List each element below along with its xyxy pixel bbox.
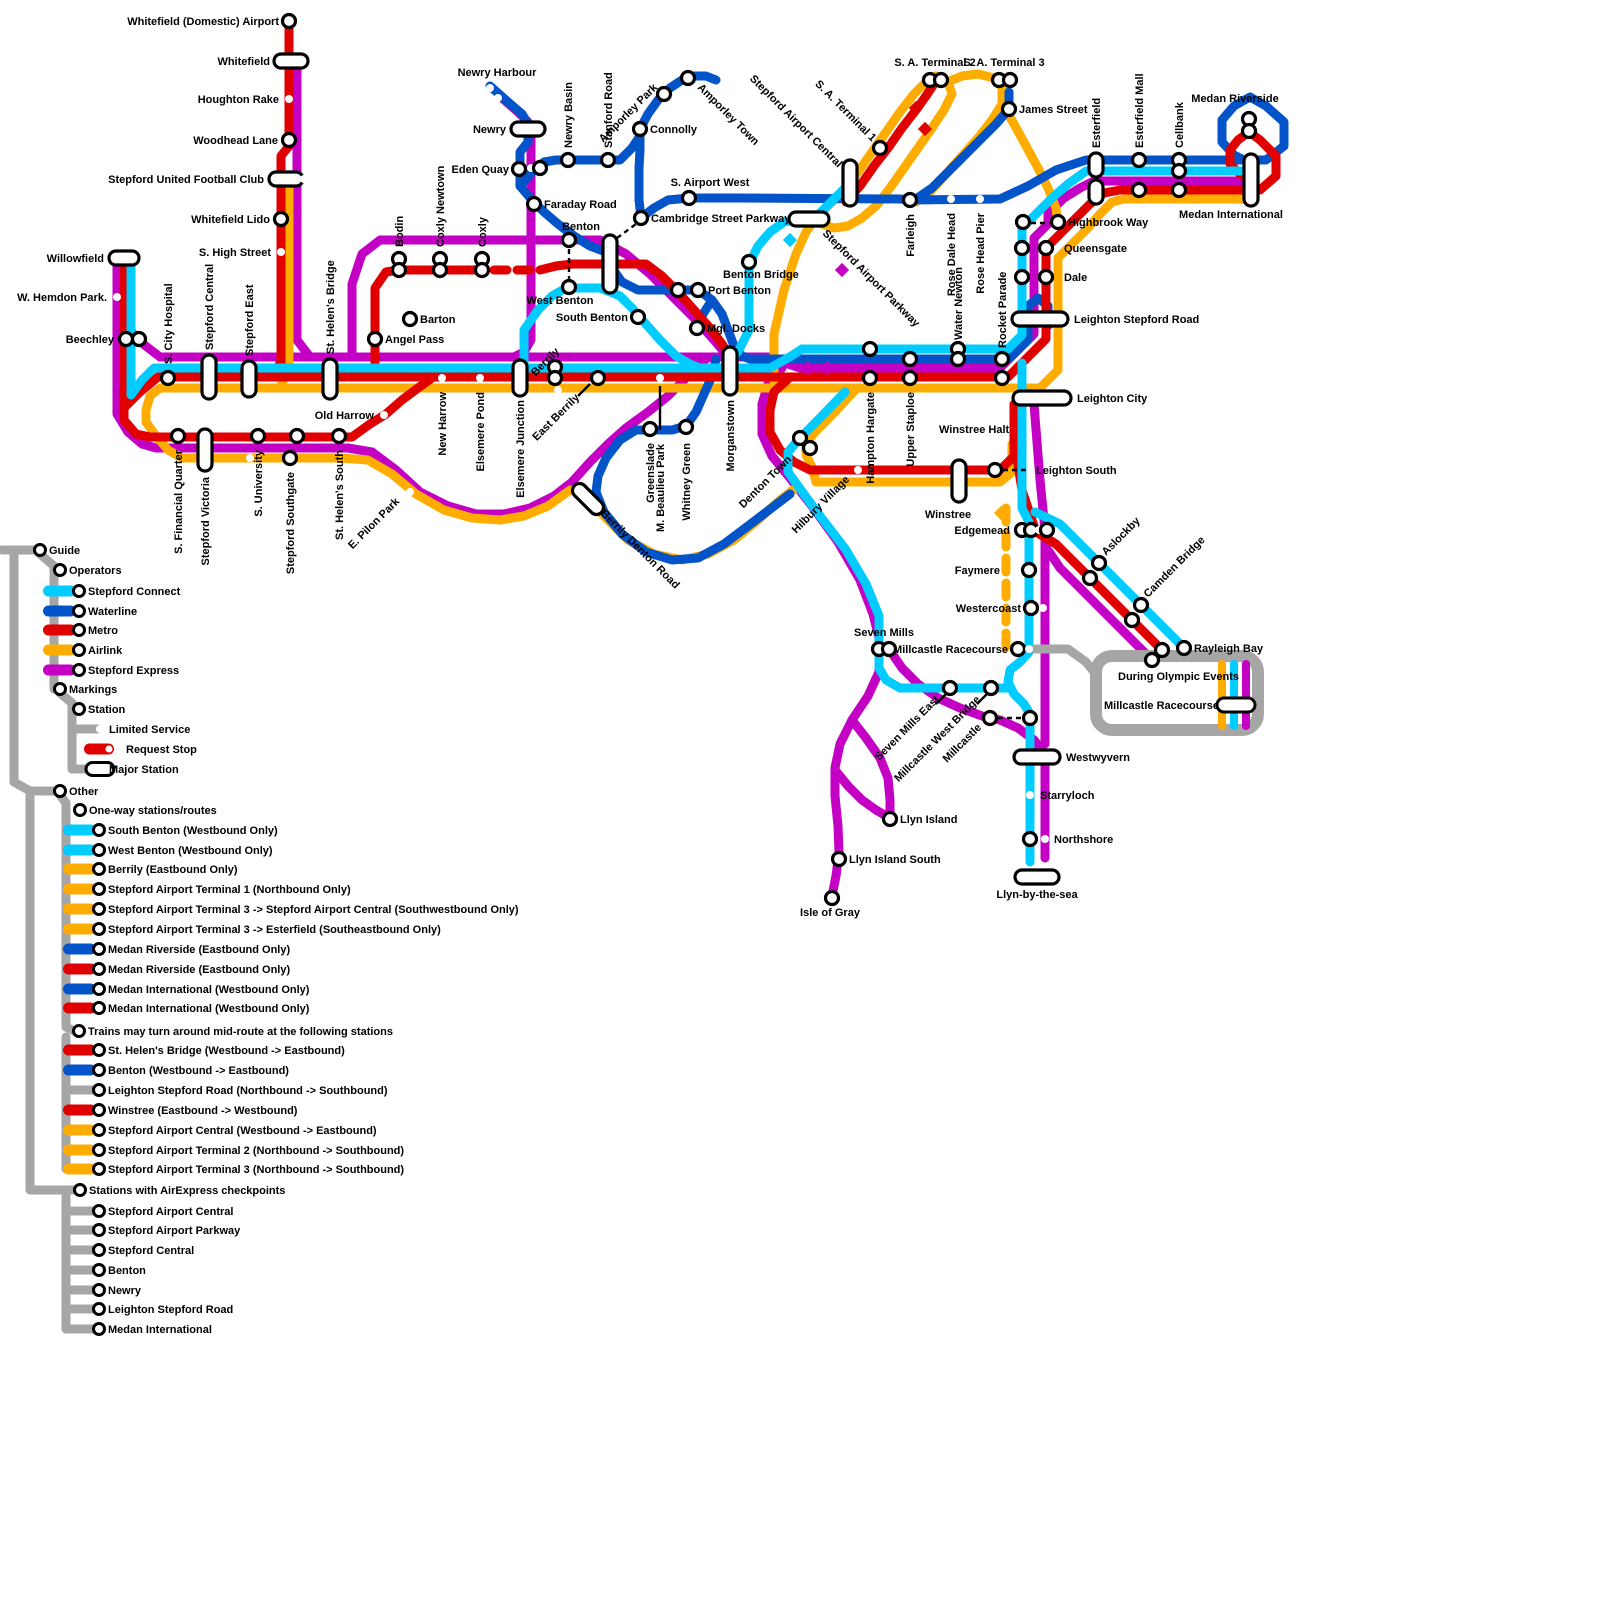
- station-marker: [935, 74, 948, 87]
- station-marker: [1052, 216, 1065, 229]
- legend-label: Stepford Connect: [88, 586, 181, 598]
- legend-node: [94, 1304, 105, 1315]
- legend-node: [55, 786, 66, 797]
- station-label: Houghton Rake: [198, 94, 279, 106]
- station-label: Elsemere Junction: [515, 400, 527, 498]
- limited-service-dot: [486, 84, 494, 92]
- legend-node: [94, 924, 105, 935]
- station-label: M. Beaulieu Park: [655, 443, 667, 532]
- legend-node: [94, 1206, 105, 1217]
- station-label: Farleigh: [905, 214, 917, 257]
- station-label: Whitney Green: [681, 443, 693, 521]
- inset-olympic-label: During Olympic Events: [1118, 671, 1239, 683]
- station-label: Northshore: [1054, 834, 1113, 846]
- station-label: Stepford United Football Club: [108, 174, 264, 186]
- inset-major-station-marker: [1217, 698, 1255, 712]
- limited-service-dot: [1041, 835, 1049, 843]
- station-marker: [644, 423, 657, 436]
- major-station-marker: [202, 355, 216, 399]
- station-marker: [602, 154, 615, 167]
- major-station-marker: [952, 460, 966, 502]
- limited-service-dot: [113, 293, 121, 301]
- legend-label: Station: [88, 704, 126, 716]
- station-marker: [1243, 125, 1256, 138]
- station-label: Queensgate: [1064, 243, 1127, 255]
- station-marker: [434, 264, 447, 277]
- major-station-marker: [603, 235, 617, 293]
- station-marker: [393, 264, 406, 277]
- major-station-marker: [723, 347, 737, 395]
- station-marker: [985, 682, 998, 695]
- limited-service-dot: [285, 95, 293, 103]
- major-station-marker: [1012, 312, 1068, 326]
- legend-line-pill-red: [63, 1045, 96, 1056]
- station-marker: [952, 353, 965, 366]
- station-marker: [1093, 557, 1106, 570]
- legend-node: [94, 1003, 105, 1014]
- major-station-marker: [1015, 870, 1059, 884]
- limited-service-dot: [438, 374, 446, 382]
- legend-line-pill-orange: [63, 1125, 96, 1136]
- station-label: Whitefield: [217, 56, 270, 68]
- legend-node: [94, 944, 105, 955]
- station-label: S. City Hospital: [163, 283, 175, 364]
- major-station-marker: [511, 122, 545, 136]
- station-label: Whitefield (Domestic) Airport: [127, 16, 279, 28]
- legend-node: [74, 1026, 85, 1037]
- station-marker: [513, 163, 526, 176]
- station-label: Rayleigh Bay: [1194, 643, 1264, 655]
- station-marker: [1004, 74, 1017, 87]
- station-marker: [528, 198, 541, 211]
- station-marker: [1156, 644, 1169, 657]
- station-marker: [833, 853, 846, 866]
- legend-node: [94, 1245, 105, 1256]
- station-marker: [562, 154, 575, 167]
- station-marker: [369, 333, 382, 346]
- legend-label: Berrily (Eastbound Only): [108, 864, 238, 876]
- station-marker: [883, 643, 896, 656]
- station-label: Eden Quay: [452, 164, 510, 176]
- station-label: Winstree: [925, 509, 971, 521]
- legend-node: [94, 1125, 105, 1136]
- inset-limited-service-dot: [1104, 672, 1112, 680]
- legend-line-pill-orange: [63, 884, 96, 895]
- station-marker: [1023, 564, 1036, 577]
- station-label: Faymere: [955, 565, 1000, 577]
- station-label: Whitefield Lido: [191, 214, 270, 226]
- station-label: Leighton South: [1036, 465, 1117, 477]
- legend-node: [94, 1105, 105, 1116]
- station-marker: [692, 284, 705, 297]
- legend-label: Medan Riverside (Eastbound Only): [108, 944, 290, 956]
- legend-node: [94, 1225, 105, 1236]
- station-marker: [658, 88, 671, 101]
- station-marker: [1084, 572, 1097, 585]
- limited-service-dot: [494, 94, 502, 102]
- station-marker: [333, 430, 346, 443]
- station-marker: [1025, 602, 1038, 615]
- station-label: W. Hemdon Park.: [17, 292, 107, 304]
- legend-label: Winstree (Eastbound -> Westbound): [108, 1105, 298, 1117]
- legend-line-pill-blue: [43, 606, 76, 617]
- station-marker: [1003, 103, 1016, 116]
- station-label: Llyn Island South: [849, 854, 941, 866]
- station-marker: [635, 212, 648, 225]
- station-marker: [874, 142, 887, 155]
- limited-service-dot: [406, 488, 414, 496]
- station-label: Willowfield: [47, 253, 104, 265]
- legend-label: Newry: [108, 1285, 142, 1297]
- station-label: Angel Pass: [385, 334, 444, 346]
- station-label: Westercoast: [956, 603, 1022, 615]
- station-label: Stepford Victoria: [200, 476, 212, 565]
- station-label: Barton: [420, 314, 456, 326]
- station-label: Westwyvern: [1066, 752, 1130, 764]
- major-station-marker: [198, 429, 212, 471]
- legend-node: [74, 665, 85, 676]
- route-line-blue: [639, 129, 641, 218]
- station-label: Medan International: [1179, 209, 1283, 221]
- legend-node: [94, 1285, 105, 1296]
- legend-label: West Benton (Westbound Only): [108, 845, 273, 857]
- legend-line-pill-magenta: [43, 665, 76, 676]
- legend-line-pill-red: [63, 1003, 96, 1014]
- legend-node: [94, 964, 105, 975]
- limited-service-dot: [1026, 791, 1034, 799]
- station-label: S. University: [253, 449, 265, 517]
- legend-label: Medan International (Westbound Only): [108, 1003, 310, 1015]
- legend-label: Leighton Stepford Road (Northbound -> So…: [108, 1085, 388, 1097]
- major-station-marker: [843, 160, 857, 206]
- station-label: Rose Head Pier: [975, 212, 987, 293]
- legend-label: Stepford Express: [88, 665, 179, 677]
- legend-line-pill-blue: [63, 944, 96, 955]
- legend-label: Major Station: [109, 764, 179, 776]
- limited-service-dot: [947, 195, 955, 203]
- station-label: Beechley: [66, 334, 115, 346]
- station-label: Newry Harbour: [458, 67, 538, 79]
- station-marker: [944, 682, 957, 695]
- station-marker: [904, 372, 917, 385]
- station-marker: [162, 372, 175, 385]
- station-label: Hampton Hargate: [865, 392, 877, 484]
- station-label: Port Benton: [708, 285, 771, 297]
- station-marker: [743, 256, 756, 269]
- legend-node: [94, 1045, 105, 1056]
- station-marker: [996, 372, 1009, 385]
- legend-node: [74, 586, 85, 597]
- legend-line-pill-red: [63, 964, 96, 975]
- legend-label: Stepford Airport Terminal 2 (Northbound …: [108, 1145, 404, 1157]
- legend-line-pill-orange: [63, 904, 96, 915]
- station-marker: [133, 333, 146, 346]
- legend-node: [94, 1065, 105, 1076]
- station-marker: [904, 194, 917, 207]
- legend-label: Stepford Airport Terminal 3 -> Esterfiel…: [108, 924, 441, 936]
- station-label: Mgl. Docks: [707, 323, 765, 335]
- station-label: Isle of Gray: [800, 907, 861, 919]
- legend-node: [94, 1085, 105, 1096]
- station-marker: [172, 430, 185, 443]
- station-label: Cellbank: [1174, 101, 1186, 148]
- legend-label: Limited Service: [109, 724, 190, 736]
- station-marker: [1024, 712, 1037, 725]
- station-label: Leighton Stepford Road: [1074, 314, 1199, 326]
- station-marker: [563, 234, 576, 247]
- station-label: Leighton City: [1077, 393, 1148, 405]
- legend-line-pill-cyan: [43, 586, 76, 597]
- legend-node: [74, 606, 85, 617]
- legend-label: South Benton (Westbound Only): [108, 825, 278, 837]
- legend-node: [35, 545, 46, 556]
- station-marker: [691, 322, 704, 335]
- station-label: Connolly: [650, 124, 698, 136]
- legend-node: [75, 1185, 86, 1196]
- station-label: Benton Bridge: [723, 269, 799, 281]
- station-label: New Harrow: [437, 392, 449, 456]
- station-marker: [683, 192, 696, 205]
- station-label: S. A. Terminal 3: [963, 57, 1044, 69]
- station-marker: [1178, 642, 1191, 655]
- legend-node: [94, 1164, 105, 1175]
- major-station-marker: [109, 251, 139, 265]
- station-marker: [1012, 643, 1025, 656]
- station-label: Old Harrow: [315, 410, 375, 422]
- legend-label: Stations with AirExpress checkpoints: [89, 1185, 285, 1197]
- legend-node: [94, 884, 105, 895]
- legend-label: Stepford Airport Central (Westbound -> E…: [108, 1125, 377, 1137]
- station-label: Benton: [562, 221, 600, 233]
- station-marker: [989, 464, 1002, 477]
- station-marker: [1016, 242, 1029, 255]
- station-marker: [1017, 216, 1030, 229]
- legend-line-pill-orange: [63, 1164, 96, 1175]
- station-marker: [592, 372, 605, 385]
- legend-label: Markings: [69, 684, 117, 696]
- legend-label: Stepford Airport Parkway: [108, 1225, 241, 1237]
- station-label: Llyn-by-the-sea: [996, 889, 1078, 901]
- station-label: S. Financial Quarter: [173, 449, 185, 554]
- legend-label: Metro: [88, 625, 118, 637]
- station-label: Stepford Southgate: [285, 472, 297, 574]
- legend-limited-service-dot: [96, 725, 104, 733]
- legend-request-stop-dot: [106, 746, 113, 753]
- station-marker: [404, 313, 417, 326]
- station-label: Winstree Halt: [939, 424, 1010, 436]
- station-label: Water Newton: [953, 267, 965, 340]
- station-marker: [1041, 524, 1054, 537]
- station-label: Seven M­ills: [854, 627, 914, 639]
- station-marker: [904, 353, 917, 366]
- legend-node: [55, 565, 66, 576]
- limited-service-dot: [380, 411, 388, 419]
- limited-service-dot: [925, 425, 933, 433]
- station-marker: [284, 452, 297, 465]
- station-label: West Benton: [526, 295, 593, 307]
- legend-node: [94, 1145, 105, 1156]
- legend-line-pill-red: [43, 625, 76, 636]
- limited-service-dot: [554, 386, 562, 394]
- station-marker: [283, 15, 296, 28]
- station-label: S. Airport West: [671, 177, 750, 189]
- major-station-marker: [274, 54, 308, 68]
- legend-node: [94, 845, 105, 856]
- station-marker: [563, 281, 576, 294]
- station-marker: [682, 72, 695, 85]
- station-label: Stepford East: [244, 284, 256, 356]
- station-label: Elsemere Pond: [475, 392, 487, 471]
- legend-label: Stepford Central: [108, 1245, 194, 1257]
- station-marker: [864, 372, 877, 385]
- major-station-marker: [513, 360, 527, 396]
- station-marker: [1024, 833, 1037, 846]
- station-marker: [672, 284, 685, 297]
- station-label: Llyn Island: [900, 814, 957, 826]
- legend-line-pill-blue: [63, 1065, 96, 1076]
- legend-node: [75, 805, 86, 816]
- legend-label: Operators: [69, 565, 122, 577]
- legend-label: Stepford Airport Terminal 3 -> Stepford …: [108, 904, 519, 916]
- station-label: Cambridge Street Parkway: [651, 213, 791, 225]
- station-marker: [826, 892, 839, 905]
- station-label: S. High Street: [199, 247, 271, 259]
- legend-line-pill-red: [63, 1105, 96, 1116]
- station-label: Woodhead Lane: [193, 135, 278, 147]
- legend-node: [94, 864, 105, 875]
- legend-label: Airlink: [88, 645, 123, 657]
- station-marker: [252, 430, 265, 443]
- legend-line-pill-orange: [43, 645, 76, 656]
- station-label: Upper Staploe: [905, 392, 917, 467]
- station-label: Newry Basin: [563, 82, 575, 148]
- station-label: St. Helen's Bridge: [325, 260, 337, 354]
- major-station-marker: [323, 359, 337, 399]
- station-marker: [476, 264, 489, 277]
- legend-label: Benton (Westbound -> Eastbound): [108, 1065, 289, 1077]
- legend-node: [74, 625, 85, 636]
- legend-node: [74, 645, 85, 656]
- limited-service-dot: [277, 248, 285, 256]
- legend-node: [94, 904, 105, 915]
- station-marker: [680, 421, 693, 434]
- station-label: Newry: [473, 124, 507, 136]
- station-label: Bodin: [394, 216, 406, 247]
- station-label: Edgemead: [954, 525, 1010, 537]
- legend-label: Trains may turn around mid-route at the …: [88, 1026, 393, 1038]
- legend-line-pill-blue: [63, 984, 96, 995]
- legend-label: St. Helen's Bridge (Westbound -> Eastbou…: [108, 1045, 345, 1057]
- station-marker: [1126, 614, 1139, 627]
- station-marker: [275, 213, 288, 226]
- station-label: Millcastle Racecourse: [893, 644, 1008, 656]
- legend-label: Stepford Airport Terminal 3 (Northbound …: [108, 1164, 404, 1176]
- station-marker: [1133, 184, 1146, 197]
- station-label: Morganstown: [725, 400, 737, 472]
- legend-line-pill-cyan: [63, 845, 96, 856]
- limited-service-dot: [656, 374, 664, 382]
- station-marker: [120, 333, 133, 346]
- station-marker: [864, 343, 877, 356]
- major-station-marker: [1013, 391, 1071, 405]
- major-station-marker: [789, 212, 829, 226]
- station-marker: [1173, 184, 1186, 197]
- legend-label: Request Stop: [126, 744, 197, 756]
- legend-line-pill-orange: [63, 1145, 96, 1156]
- legend-node: [94, 1324, 105, 1335]
- legend-label: Medan International (Westbound Only): [108, 984, 310, 996]
- station-marker: [1133, 154, 1146, 167]
- station-label: Stepford Central: [204, 264, 216, 350]
- station-label: Coxly Newtown: [435, 165, 447, 247]
- limited-service-dot: [1025, 645, 1033, 653]
- station-marker: [1173, 165, 1186, 178]
- station-marker: [996, 353, 1009, 366]
- station-marker: [804, 442, 817, 455]
- station-marker: [283, 134, 296, 147]
- major-station-marker: [242, 361, 256, 397]
- station-marker: [1040, 271, 1053, 284]
- station-marker: [549, 372, 562, 385]
- major-station-marker: [1014, 750, 1060, 764]
- transit-map-page: During Olympic EventsMillcastle Racecour…: [0, 0, 1600, 1600]
- legend-node: [74, 704, 85, 715]
- station-marker: [534, 162, 547, 175]
- station-marker: [1135, 599, 1148, 612]
- legend-label: Medan Riverside (Eastbound Only): [108, 964, 290, 976]
- station-marker: [984, 712, 997, 725]
- inset-racecourse-label: Millcastle Racecourse: [1104, 700, 1219, 712]
- station-label: Esterfield: [1091, 98, 1103, 148]
- station-label: Esterfield Mall: [1134, 73, 1146, 148]
- legend-label: One-way stations/routes: [89, 805, 217, 817]
- legend-label: Leighton Stepford Road: [108, 1304, 233, 1316]
- station-marker: [1016, 271, 1029, 284]
- limited-service-dot: [476, 374, 484, 382]
- legend-label: Stepford Airport Central: [108, 1206, 234, 1218]
- legend-label: Guide: [49, 545, 80, 557]
- legend-node: [94, 825, 105, 836]
- legend-label: Benton: [108, 1265, 146, 1277]
- legend-label: Waterline: [88, 606, 137, 618]
- station-label: Faraday Road: [544, 199, 617, 211]
- major-station-marker: [269, 172, 303, 186]
- legend-line-pill-cyan: [63, 825, 96, 836]
- limited-service-dot: [854, 466, 862, 474]
- station-marker: [634, 123, 647, 136]
- major-station-marker: [1244, 154, 1258, 206]
- major-station-marker: [1089, 153, 1103, 177]
- station-label: Dale: [1064, 272, 1087, 284]
- station-marker: [884, 813, 897, 826]
- station-label: James Street: [1019, 104, 1088, 116]
- station-label: St. Helen's South: [334, 450, 346, 540]
- station-label: Rocket Parade: [997, 272, 1009, 348]
- station-label: Medan Riverside: [1191, 93, 1278, 105]
- limited-service-dot: [300, 175, 308, 183]
- major-station-marker: [1089, 180, 1103, 204]
- station-label: South Benton: [556, 312, 628, 324]
- legend-line-pill-orange: [63, 924, 96, 935]
- station-label: Highbrook Way: [1068, 217, 1149, 229]
- station-label: Starryloch: [1040, 790, 1095, 802]
- transit-map-canvas: During Olympic EventsMillcastle Racecour…: [0, 0, 1600, 1600]
- station-label: Coxly: [477, 216, 489, 247]
- station-marker: [1040, 242, 1053, 255]
- legend-node: [55, 684, 66, 695]
- legend-line-pill-orange: [63, 864, 96, 875]
- legend-label: Stepford Airport Terminal 1 (Northbound …: [108, 884, 351, 896]
